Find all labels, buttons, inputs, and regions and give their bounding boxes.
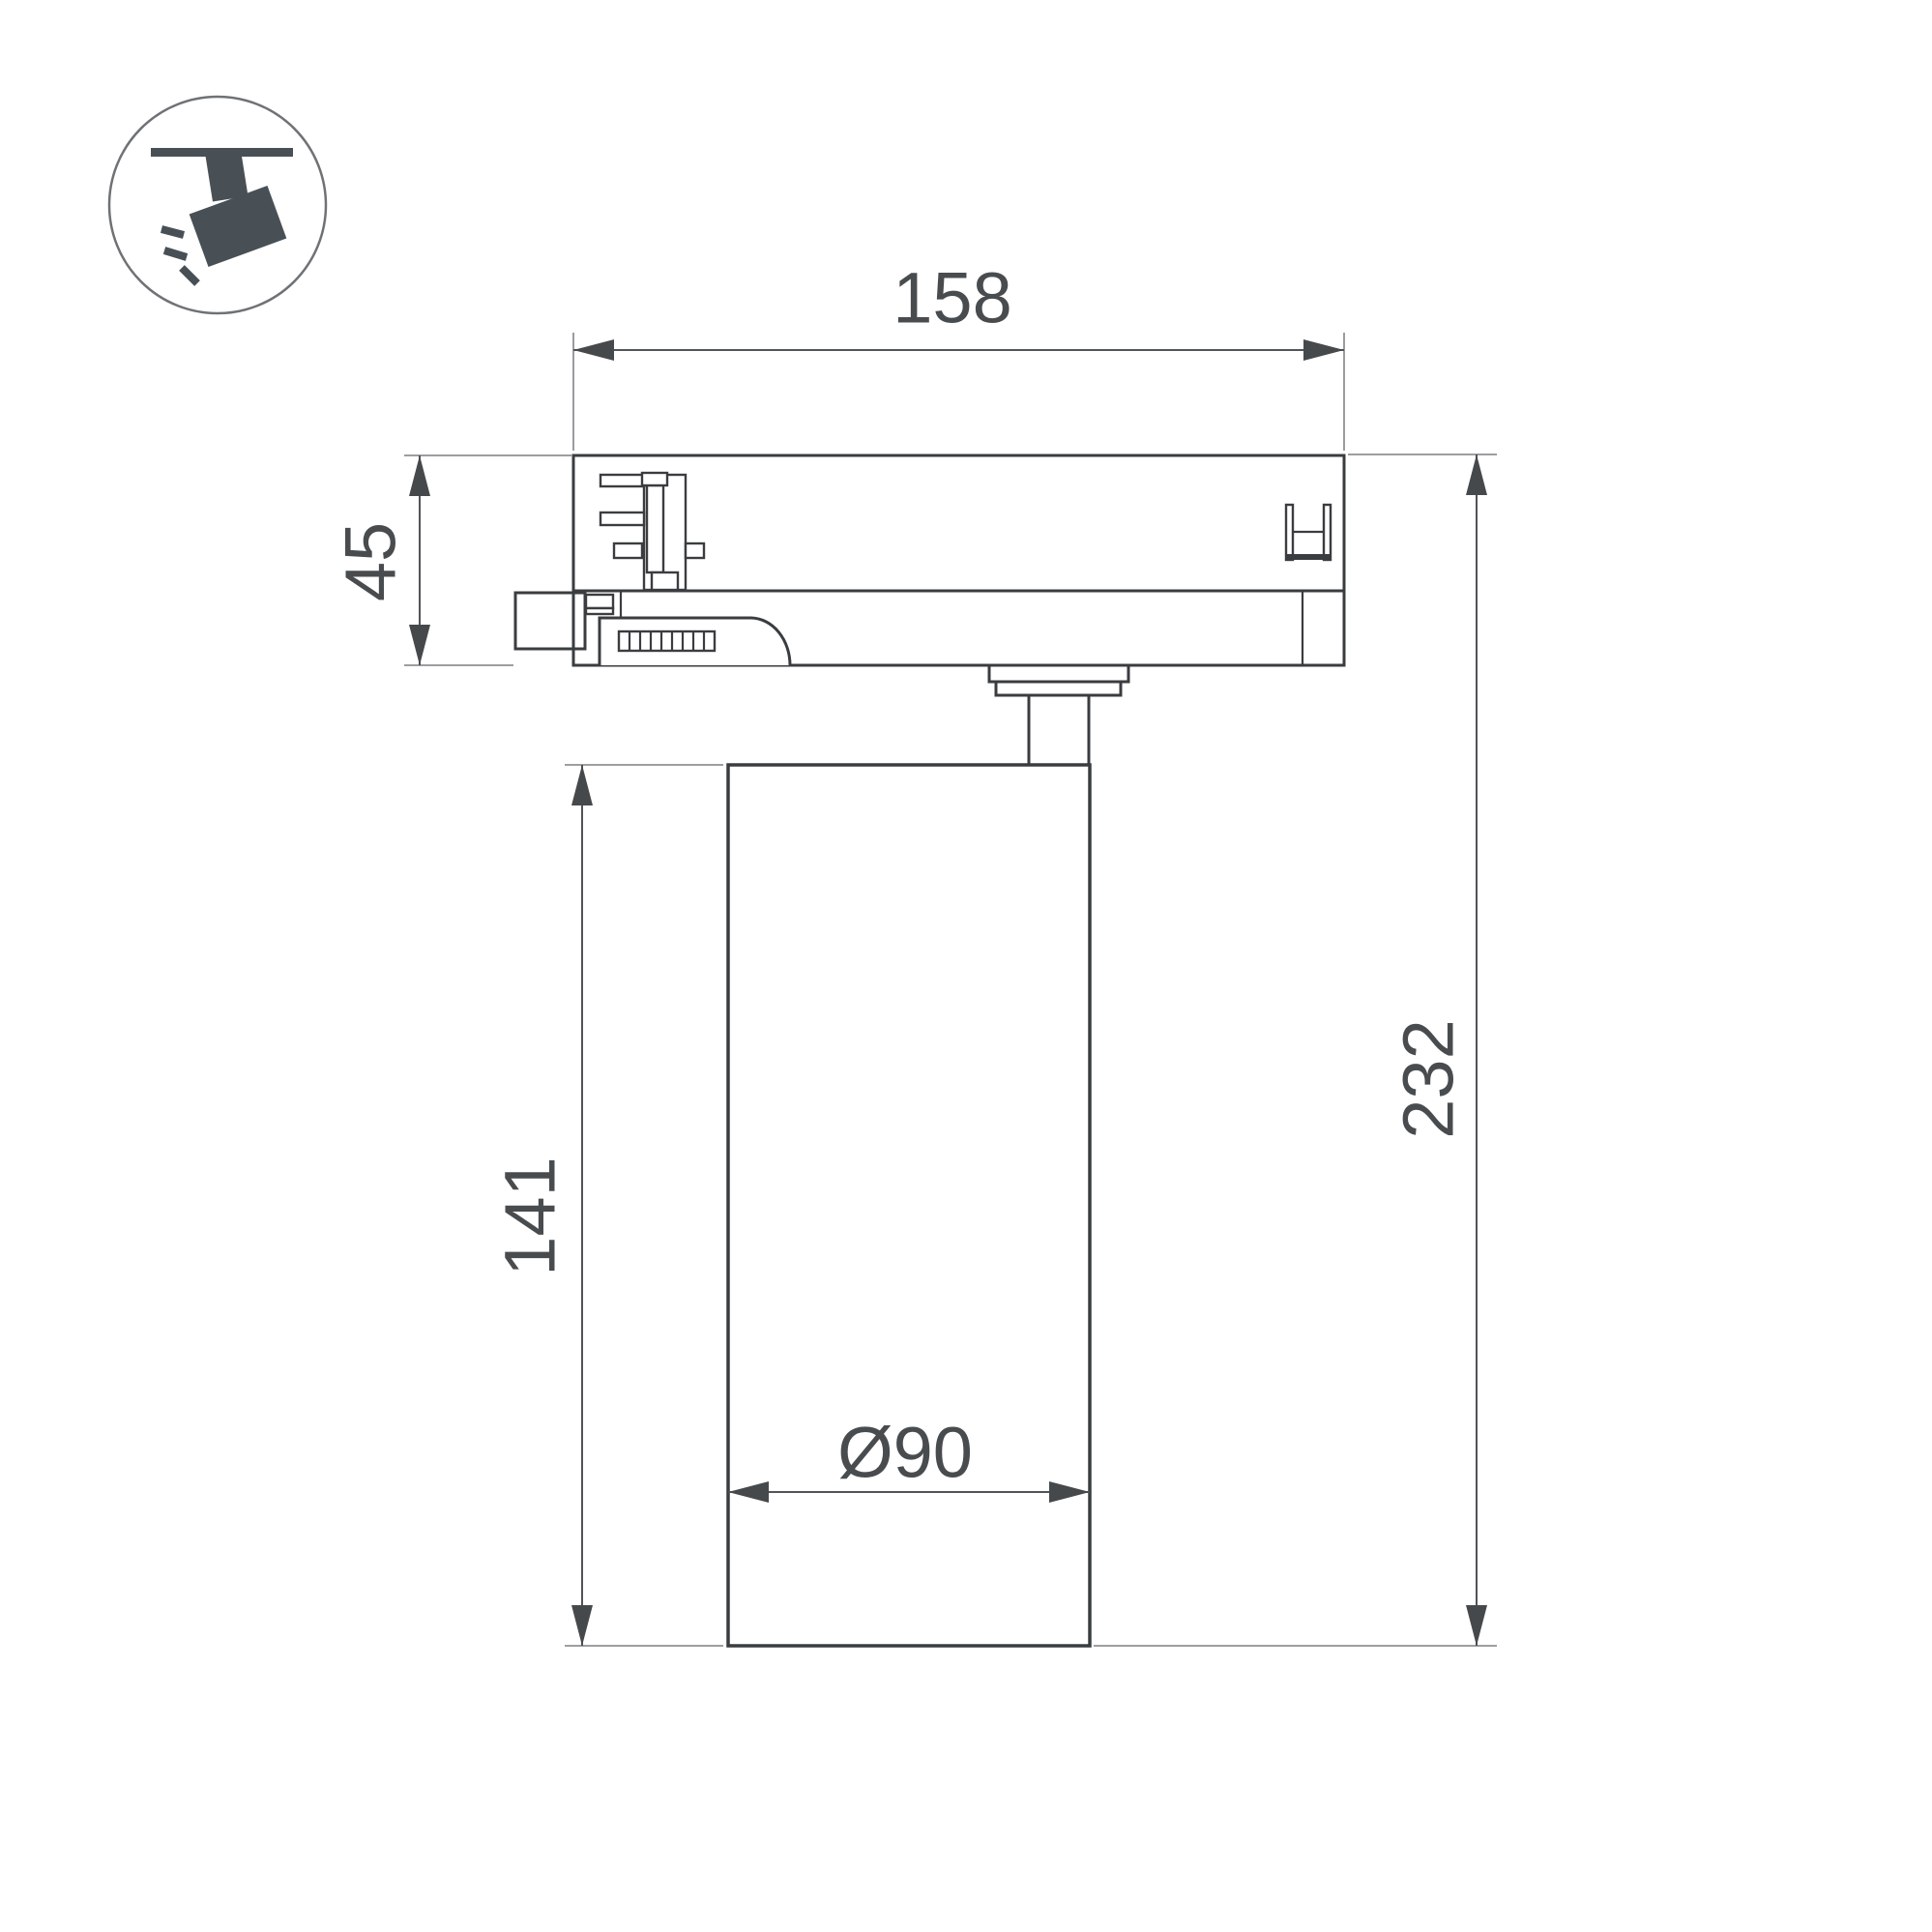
dimension-track-width: 158 [573, 258, 1344, 452]
dimension-label: Ø90 [837, 1413, 973, 1493]
dimension-label: 45 [331, 522, 411, 601]
contact-prong-middle [600, 512, 644, 525]
lock-latch [586, 595, 613, 608]
arrowhead-up [571, 765, 593, 805]
dimension-body-height: 141 [490, 765, 724, 1646]
swivel-plate-lower [996, 682, 1121, 695]
arrowhead-left [573, 339, 614, 361]
arrowhead-down [1466, 1605, 1487, 1646]
contact-column [647, 485, 663, 572]
dimension-label: 158 [893, 258, 1011, 338]
contact-prong-right [686, 543, 704, 558]
adapter-upper-housing [573, 455, 1344, 591]
grip-ribs [619, 631, 715, 651]
dimension-label: 141 [490, 1156, 571, 1275]
track-spotlight-icon [109, 97, 326, 313]
contact-prong-bottom [614, 543, 642, 558]
arrowhead-down [571, 1605, 593, 1646]
swivel-plate-upper [989, 665, 1128, 682]
lock-latch-lower [586, 608, 613, 614]
swivel-stem [1029, 695, 1089, 766]
arrowhead-up [409, 455, 430, 496]
arrowhead-up [1466, 454, 1487, 495]
arrowhead-right [1303, 339, 1344, 361]
icon-mount-stem [205, 150, 248, 201]
contact-cap [642, 473, 667, 485]
technical-drawing: 158 45 141 232 Ø90 [0, 0, 1932, 1932]
contact-prong-top [600, 475, 644, 486]
lamp-cylinder [728, 765, 1090, 1646]
arrowhead-down [409, 625, 430, 665]
contact-foot [652, 572, 678, 590]
track-adapter [515, 455, 1344, 665]
swivel-joint [989, 665, 1128, 766]
dimension-label: 232 [1389, 1019, 1469, 1138]
drawing-page: 158 45 141 232 Ø90 [0, 0, 1932, 1932]
